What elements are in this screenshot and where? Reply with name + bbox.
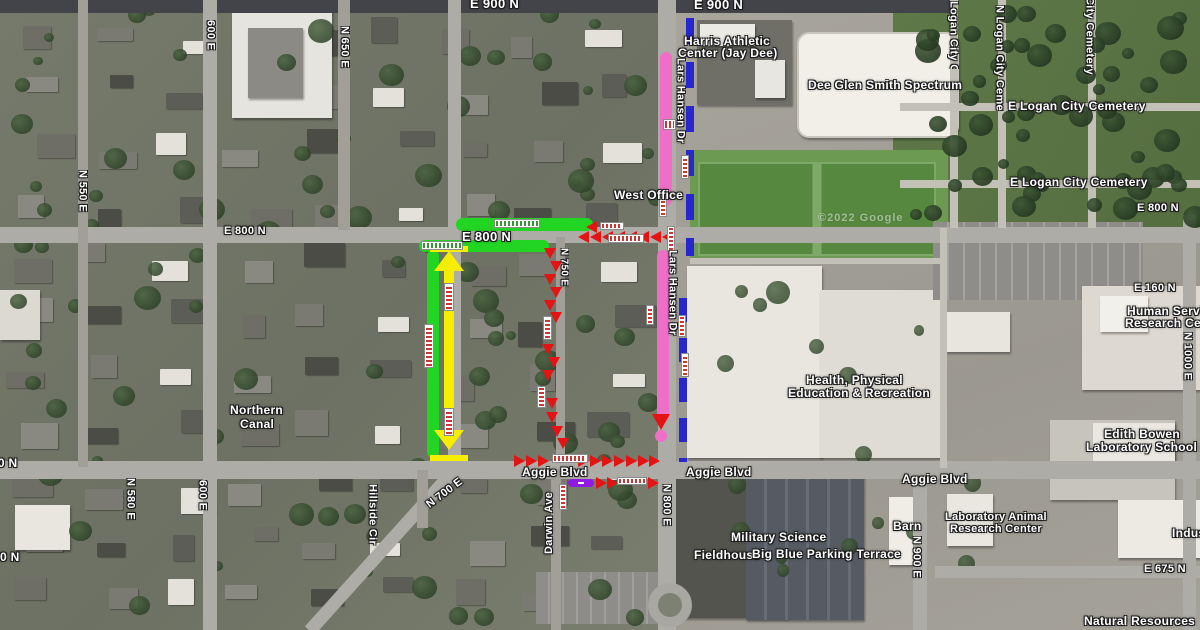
tree [777, 564, 789, 576]
house-roof [91, 355, 118, 377]
tree [15, 78, 30, 91]
house-roof [307, 129, 339, 154]
red-direction-arrow [638, 455, 649, 467]
tree [173, 49, 187, 62]
house-roof [37, 134, 76, 158]
poi-label-hper: Health, Physical [806, 374, 903, 387]
tree [415, 164, 441, 188]
tree [89, 190, 102, 202]
house-roof [304, 243, 345, 267]
house-roof [591, 536, 622, 549]
construction-sign [559, 484, 567, 510]
tree [134, 286, 161, 310]
tree [487, 50, 505, 66]
yellow-arrow-up [434, 251, 464, 271]
tree [459, 46, 481, 66]
red-direction-arrow [586, 221, 597, 233]
tree [10, 294, 27, 310]
street-label-n900e: N 900 E [910, 536, 922, 592]
tree [973, 75, 987, 87]
red-direction-arrow [614, 455, 625, 467]
poi-label-harris: Center (Jay Dee) [678, 47, 778, 60]
house-roof [456, 579, 485, 605]
tree [963, 26, 981, 42]
tree [1016, 129, 1030, 142]
house-roof [463, 143, 487, 157]
tree [520, 484, 543, 504]
construction-sign [681, 353, 689, 377]
red-direction-arrow [542, 344, 554, 355]
street-label-n800e: N 800 E [660, 484, 672, 544]
poi-label-human-services: Research Center [1125, 317, 1200, 330]
tree [412, 576, 437, 599]
house-roof [602, 74, 626, 97]
construction-sign [608, 234, 644, 243]
map-watermark: ©2022 Google [818, 212, 904, 224]
campus-walkway-h [690, 258, 940, 264]
poi-label-industrial: Industrial [1172, 527, 1200, 540]
house-roof [254, 527, 279, 541]
red-direction-arrow [546, 398, 558, 409]
poi-label-hper: Education & Recreation [788, 387, 930, 400]
construction-sign [421, 241, 463, 250]
poi-label-big-blue: Big Blue Parking Terrace [752, 548, 901, 561]
house-roof [603, 143, 643, 163]
building [946, 312, 1010, 352]
tree [1113, 197, 1139, 220]
red-direction-arrow [557, 438, 569, 449]
street-label-fragment: 0 N [0, 551, 20, 564]
street-label-aggie-blvd: Aggie Blvd [902, 473, 968, 486]
house-roof [110, 75, 133, 88]
house-roof [518, 322, 542, 347]
poi-label-west-office: West Office [614, 189, 683, 202]
street-label-e700n: E 700 N [0, 457, 17, 470]
house-roof [228, 484, 261, 507]
street-label-n580e: N 580 E [124, 478, 136, 538]
house-roof [534, 141, 563, 162]
tree [148, 262, 163, 276]
house-roof [156, 133, 186, 155]
red-direction-arrow [650, 231, 661, 243]
red-direction-arrow [590, 455, 601, 467]
construction-sign [537, 386, 546, 408]
street-label-e800n: E 800 N [462, 230, 511, 244]
tree [449, 607, 469, 625]
house-roof [222, 150, 258, 167]
street-label-n550e: N 550 E [76, 170, 88, 242]
tree [924, 205, 942, 221]
street-label-e160n: E 160 N [1134, 283, 1176, 295]
tree [1017, 6, 1035, 22]
street-label-aggie-blvd: Aggie Blvd [686, 466, 752, 479]
house-roof [85, 489, 123, 510]
tree [1157, 16, 1184, 40]
house-roof [295, 304, 323, 326]
house-roof [168, 579, 195, 605]
house-roof [21, 423, 58, 448]
house-roof [243, 315, 265, 338]
house-roof [585, 30, 622, 47]
tree [189, 300, 203, 312]
construction-sign [552, 454, 588, 463]
tree [308, 19, 334, 42]
tree [422, 527, 437, 541]
tree [1171, 178, 1187, 192]
street-label-cemetery: Logan City Ce [947, 1, 959, 69]
tree [766, 281, 789, 304]
tree [576, 315, 595, 332]
red-direction-arrow [544, 248, 556, 259]
tree [113, 386, 135, 406]
tree [626, 609, 645, 626]
tree [289, 503, 314, 526]
tree [717, 355, 734, 372]
tree [580, 158, 595, 171]
street-label-cemetery: E Logan City Cemetery [1008, 100, 1146, 113]
house-roof [14, 259, 52, 283]
house-roof [511, 37, 532, 57]
tree [1027, 44, 1052, 66]
house-roof [26, 77, 58, 92]
house-roof [14, 577, 46, 600]
red-direction-arrow [649, 455, 660, 467]
tree [1045, 24, 1066, 43]
street-label-e800n: E 800 N [224, 226, 266, 238]
house-roof [97, 28, 132, 41]
tree [277, 54, 296, 71]
red-direction-arrow [596, 477, 607, 489]
poi-label-barn: Barn [893, 520, 922, 533]
red-direction-arrow [548, 357, 560, 368]
house-roof [302, 543, 335, 559]
poi-label-edith-bowen: Laboratory School and [1086, 441, 1200, 454]
house-roof [85, 428, 117, 443]
tree [568, 169, 594, 192]
house-roof [173, 535, 194, 561]
red-direction-arrow [648, 477, 659, 489]
tree [1122, 48, 1134, 59]
red-direction-arrow [551, 426, 563, 437]
tree [129, 596, 150, 615]
tree [1156, 164, 1175, 181]
tree [588, 579, 612, 600]
street-label-600e: 600 E [204, 20, 216, 82]
street-label-lars-hansen: Lars Hansen Dr [674, 58, 686, 158]
construction-sign [543, 316, 552, 340]
satellite-map-canvas[interactable]: E 900 N E 900 N E 800 N E 800 N E 800 N … [0, 0, 1200, 630]
house-roof [166, 93, 202, 108]
house-roof [470, 541, 505, 566]
house-roof [97, 543, 125, 557]
tree [488, 331, 504, 345]
house-roof [371, 17, 397, 43]
street-label-lars-hansen: Lars Hansen Dr [666, 250, 678, 346]
house-roof [542, 82, 578, 105]
building [755, 60, 785, 98]
house-roof [399, 208, 423, 221]
construction-sign [681, 155, 689, 179]
construction-sign [600, 222, 624, 230]
tree [104, 148, 127, 169]
poi-label-spectrum: Dee Glen Smith Spectrum [808, 79, 962, 92]
street-label-hillside-cir: Hillside Cir [366, 484, 378, 552]
poi-label-lab-animal: Laboratory Animal [945, 512, 1047, 524]
construction-sign [494, 219, 540, 228]
tree [948, 179, 962, 192]
pink-route-endpoint [655, 430, 667, 442]
poi-label-lab-animal: Research Center [950, 524, 1042, 536]
house-roof [295, 410, 328, 436]
poi-label-military-science: Military Science [731, 531, 827, 544]
red-direction-arrow [542, 370, 554, 381]
tree [173, 160, 195, 180]
tree [589, 19, 601, 29]
tree [872, 517, 883, 528]
building-hper [687, 266, 822, 458]
house-roof [400, 131, 434, 146]
purple-segment [568, 479, 594, 487]
tree [30, 181, 42, 192]
poi-label-northern-canal: Northern [230, 404, 283, 417]
tree [318, 507, 339, 526]
street-label-cemetery: N Logan City Cemetery [993, 5, 1005, 111]
tree [610, 435, 625, 448]
street-label-cemetery: E Logan City Cemetery [1010, 176, 1148, 189]
poi-label-natural-resources: Natural Resources [1084, 615, 1195, 628]
street-label-aggie-blvd: Aggie Blvd [522, 466, 588, 479]
tree [961, 91, 978, 107]
building [15, 505, 70, 550]
construction-sign [667, 226, 675, 252]
poi-label-fieldhouse: Fieldhouse [694, 549, 760, 562]
red-direction-arrow [626, 455, 637, 467]
poi-label-edith-bowen: Edith Bowen [1104, 428, 1180, 441]
tree [1154, 129, 1180, 152]
tree [942, 135, 967, 157]
red-direction-arrow [544, 300, 556, 311]
tree [972, 167, 993, 186]
tree [1012, 196, 1036, 217]
tree [614, 328, 634, 346]
house-roof [181, 410, 204, 433]
tree [914, 325, 924, 335]
construction-sign [444, 408, 454, 436]
street-label-e800n: E 800 N [1137, 203, 1179, 215]
construction-sign [617, 477, 647, 485]
roundabout [648, 583, 692, 627]
street-label-cemetery: City Cemetery [1083, 0, 1095, 75]
construction-sign [646, 305, 654, 325]
tree [37, 203, 52, 217]
construction-sign [444, 283, 454, 311]
yellow-detour-bar [430, 455, 468, 461]
house-roof [305, 357, 339, 375]
house-roof [375, 426, 399, 444]
street-label-n750e: N 750 E [558, 248, 569, 300]
tree [11, 114, 33, 134]
red-direction-arrow [544, 274, 556, 285]
tree [753, 298, 766, 311]
construction-sign [678, 315, 686, 337]
red-direction-arrow [546, 412, 558, 423]
tree [624, 75, 647, 96]
house-roof [378, 317, 408, 332]
tree [474, 608, 494, 626]
street-label-e675n: E 675 N [1144, 564, 1186, 576]
road-600-e [203, 0, 217, 630]
red-direction-arrow [652, 414, 670, 430]
street-label-e900n: E 900 N [470, 0, 519, 11]
tree [25, 376, 41, 390]
red-direction-arrow [602, 455, 613, 467]
street-label-darwin-ave: Darwin Ave [544, 486, 556, 554]
tree [1131, 151, 1145, 163]
house-roof [225, 585, 257, 599]
house-roof [383, 577, 413, 592]
poi-label-northern-canal: Canal [240, 418, 274, 431]
street-label-n1000e: N 1000 E [1181, 332, 1193, 396]
street-label-n650e: N 650 E [338, 26, 350, 98]
construction-sign [424, 324, 434, 368]
tree [484, 309, 504, 327]
house-roof [373, 88, 404, 107]
house-roof [613, 374, 646, 387]
street-label-600e: 600 E [196, 480, 208, 530]
house-roof [245, 261, 273, 283]
house-roof [160, 369, 191, 386]
tree [1014, 38, 1031, 53]
campus-walkway-v [940, 228, 947, 468]
house-roof [601, 262, 637, 282]
tree [1160, 50, 1186, 73]
street-label-e900n: E 900 N [694, 0, 743, 12]
tree [1140, 77, 1158, 93]
